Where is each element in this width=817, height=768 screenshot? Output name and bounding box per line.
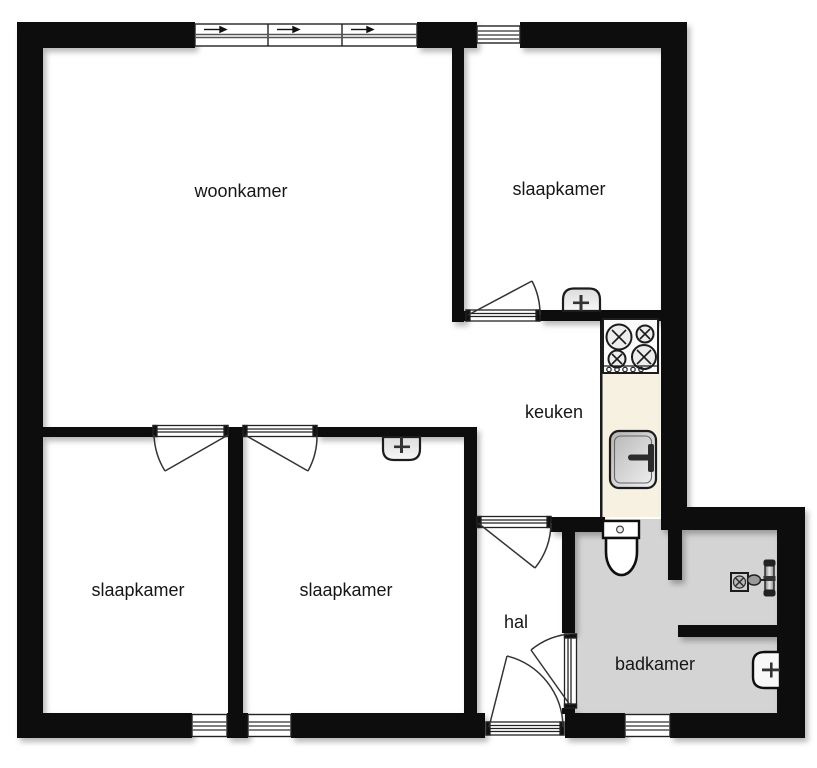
window-bedroom-left (192, 715, 227, 737)
window-livingroom (195, 24, 417, 46)
room-label-woonkamer: woonkamer (193, 181, 287, 201)
room-label-hal: hal (504, 612, 528, 632)
wall-bedroom-divider (228, 427, 243, 713)
wall-bedrooms-top-a (43, 427, 153, 437)
window-bedroom-middle (248, 715, 291, 737)
shower-drain-icon (731, 573, 748, 591)
wall-outer-right-upper (661, 22, 687, 530)
wall-bedrooms-top-b (317, 427, 477, 437)
sill-bedroom-top (466, 310, 540, 321)
washbasin-bedroom-top-icon (563, 289, 600, 312)
wall-hall-right-a (562, 518, 575, 633)
wall-bottom-c (291, 713, 485, 738)
wall-bottom-a (17, 713, 192, 738)
room-label-keuken: keuken (525, 402, 583, 422)
wall-hall-left (464, 427, 477, 713)
room-label-slaapkamer-top: slaapkamer (512, 179, 605, 199)
wall-top-a (17, 22, 195, 48)
stove-icon (603, 319, 658, 373)
sill-bathroom-door (565, 634, 577, 708)
bathroom-washbasin-icon (753, 652, 780, 688)
sill-front-door (486, 722, 564, 735)
sill-bedroom-middle (243, 426, 317, 437)
room-label-slaapkamer-left: slaapkamer (91, 580, 184, 600)
kitchen-sink-icon (610, 431, 656, 488)
wall-hall-top (551, 517, 605, 532)
wall-shower-partition (678, 625, 777, 637)
floor-plan-svg: woonkamer slaapkamer keuken slaapkamer s… (0, 0, 817, 768)
wall-bottom-e (670, 713, 805, 738)
wall-outer-left (17, 22, 43, 738)
toilet-icon (603, 521, 639, 575)
wall-hall-right-b (562, 708, 575, 714)
wall-livingroom-right (452, 45, 464, 322)
wall-bottom-b (227, 713, 248, 738)
sill-bedroom-left (153, 426, 228, 437)
room-label-badkamer: badkamer (615, 654, 695, 674)
wall-bottom-d (565, 713, 625, 738)
room-label-slaapkamer-middle: slaapkamer (299, 580, 392, 600)
wall-bedroomtop-bottom-a (452, 311, 466, 321)
floor-plan: woonkamer slaapkamer keuken slaapkamer s… (0, 0, 817, 768)
sill-hall-kitchen (477, 517, 551, 528)
wall-top-b (417, 22, 477, 48)
washbasin-bedroom-middle-icon (383, 437, 420, 460)
window-bathroom (625, 715, 670, 737)
wall-bathroom-right (777, 507, 805, 738)
window-bedroom-top (477, 26, 520, 43)
wall-bathroom-stub-vertical (668, 530, 682, 580)
